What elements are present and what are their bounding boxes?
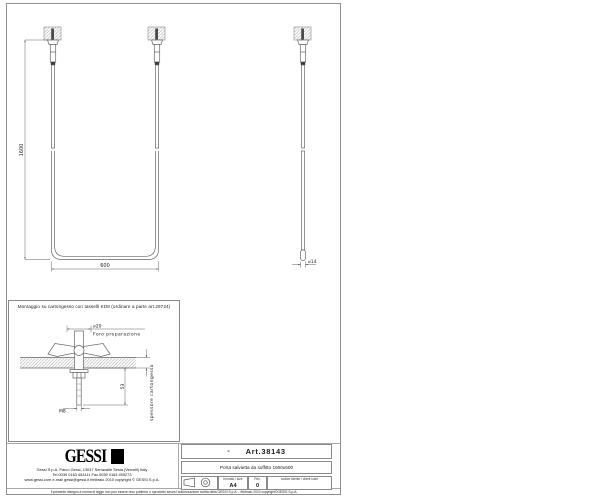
company-web: www.gessi.com e-mail gessi@gessi.it febb… [24,477,159,482]
bar-end-cap-side [301,250,306,261]
gessi-logo-text: GESSI [64,447,106,466]
rod-upper-right [155,65,158,148]
format-cell: formato / size A4 [218,476,248,490]
format-value: A4 [229,482,236,490]
rod-upper-left [51,65,54,148]
dim-width-label: 600 [100,263,110,269]
towel-bar-outer [51,151,158,260]
company-block: GESSI Gessi S.p.A. Parco Gessi, 13037 Se… [6,444,178,489]
dim-height-label: 1600 [19,144,25,157]
mount-bolt-right [155,29,158,40]
rod-connector-side [300,45,305,63]
projection-cone-icon [184,478,195,487]
client-code-label: codice cliente / client code [281,477,318,482]
rod-joint-right [155,62,159,65]
series-placeholder: - [227,448,229,455]
product-description: Porta salvietta da soffitto 1600x600 [181,461,332,474]
legal-disclaimer: Il presente disegno a norma di legge non… [6,489,342,496]
revision-value: 0 [256,482,259,490]
rod-connector-left [50,45,55,63]
title-block-article-row: - Art.38143 [181,444,332,459]
mount-flange-left [48,40,59,45]
rod-upper-side [301,65,304,148]
rod-joint-side [301,62,305,65]
rod-joint-left [51,62,55,65]
client-code-cell: codice cliente / client code [267,476,332,490]
mount-bolt-side [301,29,304,40]
towel-bar-inner [55,151,156,256]
revision-cell: Rev. 0 [248,476,267,490]
side-view [294,27,311,261]
projection-symbol-cell [181,476,218,490]
rod-connector-right [154,45,159,63]
mount-flange-right [152,40,163,45]
mounting-detail-title: Montaggio su cartongesso con tasselli KD… [10,304,178,309]
mount-bolt-left [51,29,54,40]
mounting-detail-box [8,300,180,442]
front-view [44,27,165,260]
gessi-logo-square-icon [111,449,124,464]
rod-lower-side [301,151,304,250]
dim-diameter-label: ⌀14 [308,259,317,265]
first-angle-projection-icon [182,477,214,488]
gessi-logo: GESSI [60,445,125,467]
projection-circle-icon [201,478,210,487]
front-view-dimensions [25,40,159,272]
article-number: Art.38143 [246,447,286,456]
mount-flange-side [298,40,309,45]
